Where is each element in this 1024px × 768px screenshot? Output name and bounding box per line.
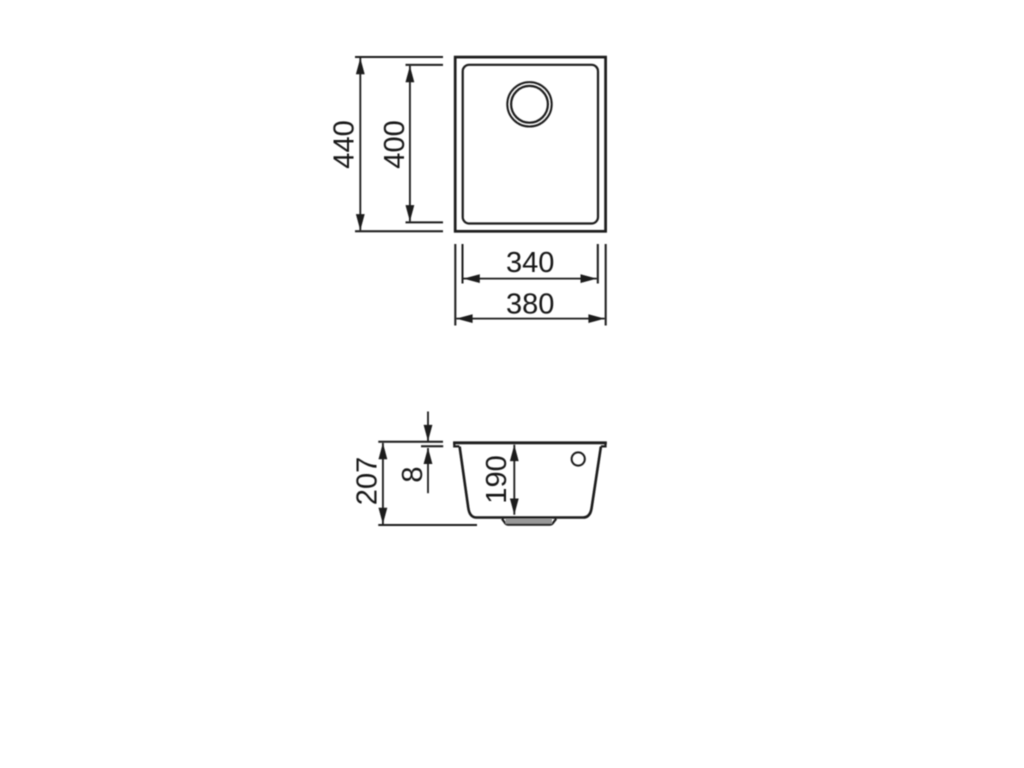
svg-text:190: 190 [481, 455, 513, 503]
svg-text:340: 340 [506, 247, 554, 279]
svg-text:380: 380 [506, 288, 554, 320]
svg-text:400: 400 [379, 120, 411, 168]
svg-text:8: 8 [397, 466, 429, 482]
svg-text:440: 440 [329, 120, 361, 168]
svg-text:207: 207 [352, 457, 384, 505]
